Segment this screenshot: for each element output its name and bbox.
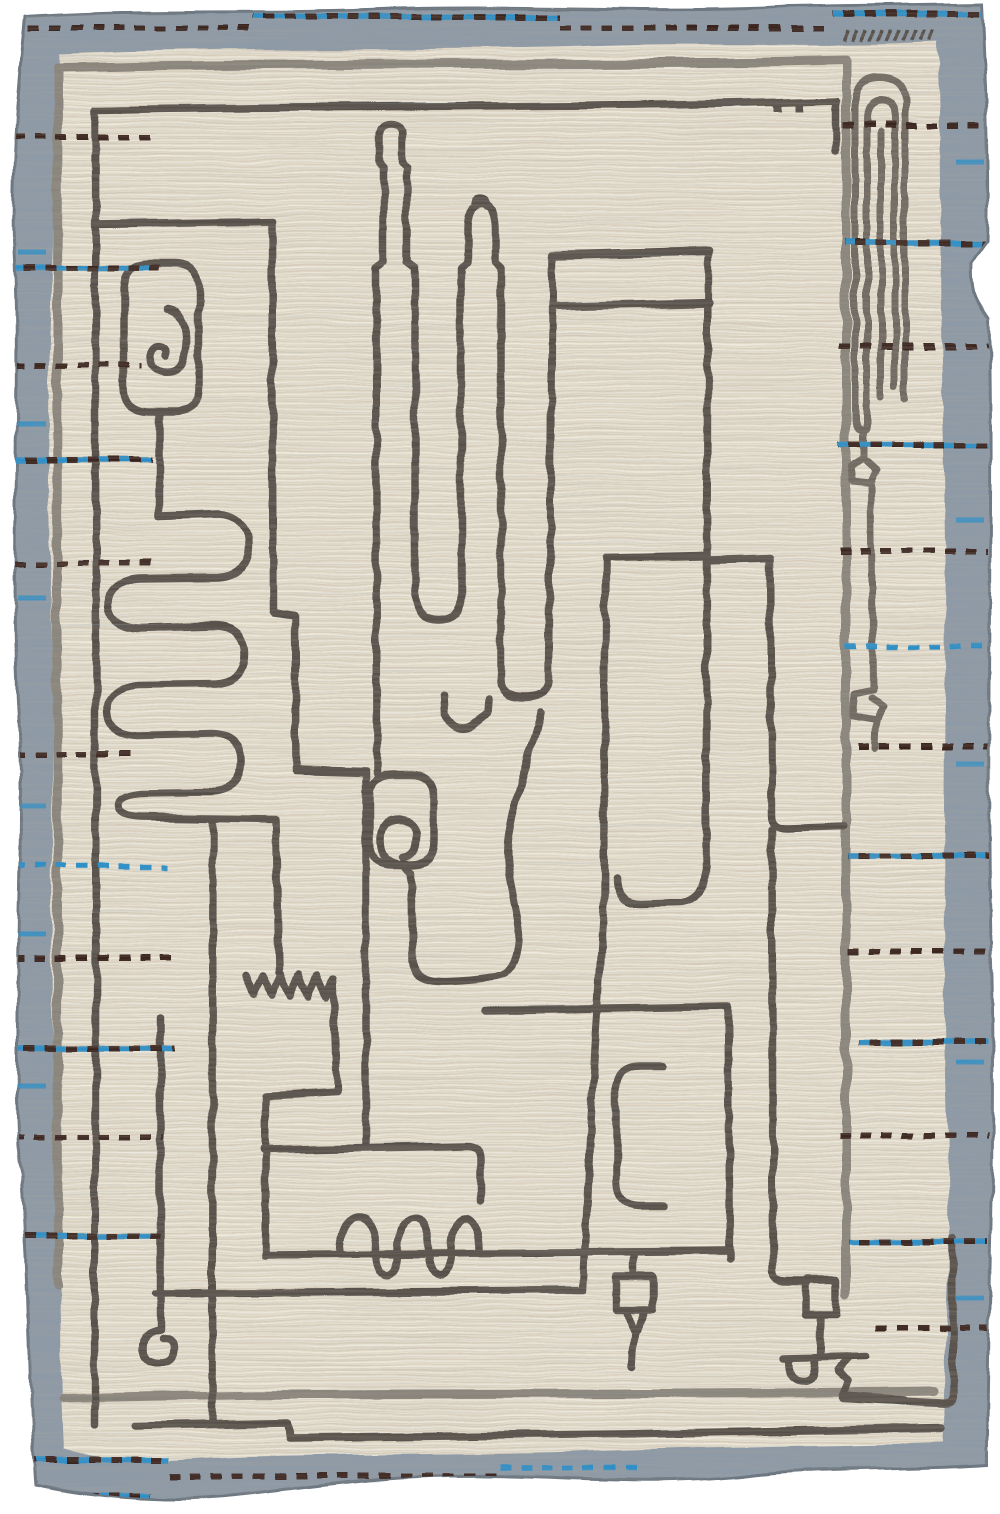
rug-photo <box>0 0 1000 1514</box>
rug-illustration <box>0 0 1000 1514</box>
texture-overlays <box>0 0 1000 1514</box>
